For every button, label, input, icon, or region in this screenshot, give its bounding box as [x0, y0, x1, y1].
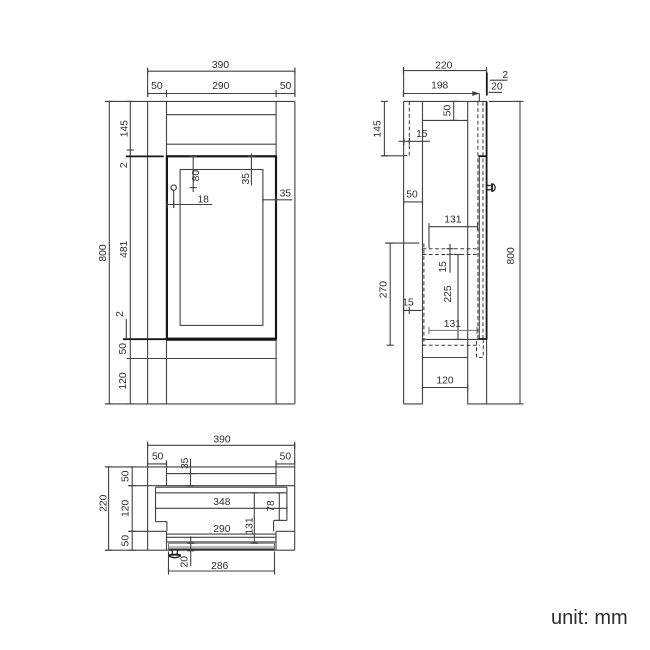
svg-text:15: 15 [438, 261, 449, 273]
svg-text:198: 198 [431, 81, 448, 92]
svg-text:131: 131 [244, 517, 255, 534]
svg-text:800: 800 [98, 244, 109, 261]
svg-text:50: 50 [152, 452, 164, 463]
svg-text:35: 35 [241, 173, 252, 185]
svg-text:50: 50 [280, 81, 292, 92]
svg-text:120: 120 [120, 500, 131, 517]
svg-text:20: 20 [179, 556, 190, 568]
svg-text:2: 2 [115, 311, 126, 317]
svg-text:50: 50 [120, 535, 131, 547]
svg-text:2: 2 [119, 162, 130, 168]
svg-text:348: 348 [213, 497, 230, 508]
svg-text:220: 220 [435, 60, 452, 71]
svg-text:18: 18 [197, 194, 209, 205]
svg-text:290: 290 [212, 81, 229, 92]
svg-text:220: 220 [98, 494, 109, 511]
svg-text:15: 15 [416, 129, 428, 140]
svg-text:120: 120 [118, 372, 129, 389]
svg-text:390: 390 [212, 60, 229, 71]
svg-text:50: 50 [120, 470, 131, 482]
svg-text:286: 286 [211, 561, 228, 572]
svg-text:50: 50 [406, 190, 418, 201]
svg-text:270: 270 [379, 281, 390, 298]
svg-text:35: 35 [180, 457, 191, 469]
svg-text:390: 390 [213, 435, 230, 446]
svg-text:120: 120 [436, 376, 453, 387]
svg-text:35: 35 [280, 189, 292, 200]
svg-text:145: 145 [119, 120, 130, 137]
svg-text:50: 50 [280, 452, 292, 463]
svg-text:50: 50 [443, 105, 454, 117]
svg-text:131: 131 [444, 319, 461, 330]
svg-text:290: 290 [213, 524, 230, 535]
svg-text:481: 481 [119, 240, 130, 257]
svg-text:225: 225 [443, 285, 454, 302]
svg-text:78: 78 [266, 500, 277, 512]
svg-text:800: 800 [506, 247, 517, 264]
svg-text:unit: mm: unit: mm [551, 607, 628, 629]
svg-text:50: 50 [118, 343, 129, 355]
svg-text:80: 80 [191, 170, 202, 182]
svg-text:145: 145 [372, 120, 383, 137]
svg-text:131: 131 [444, 215, 461, 226]
svg-text:50: 50 [151, 81, 163, 92]
svg-text:20: 20 [491, 81, 503, 92]
svg-text:2: 2 [502, 70, 508, 81]
